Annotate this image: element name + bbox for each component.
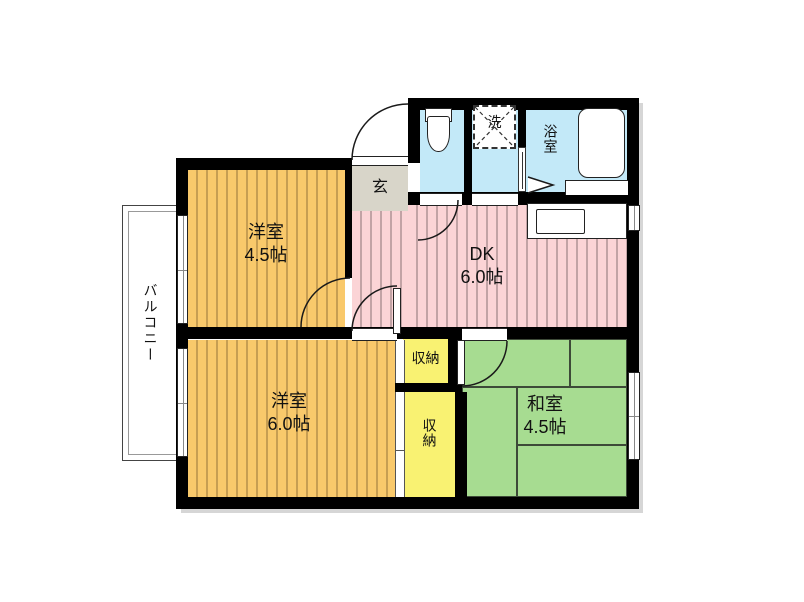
room-label-balcony: バルコニー <box>141 283 159 363</box>
room-label-genkan: 玄 <box>352 178 408 198</box>
floor-plan: 洋室 4.5帖 DK 6.0帖 洋室 6.0帖 和室 4.5帖 玄 バルコニー … <box>0 0 804 602</box>
room-label-storage-lower: 収納 <box>420 418 438 448</box>
tatami-line <box>569 339 571 388</box>
kitchen-sink <box>536 209 585 234</box>
room-name: 洋室 <box>196 221 336 244</box>
wall <box>408 98 420 163</box>
wall <box>518 110 526 150</box>
window <box>628 205 640 231</box>
closet-door-tick <box>396 450 404 451</box>
room-label-western-4-5: 洋室 4.5帖 <box>196 221 336 266</box>
tatami-line <box>462 386 627 388</box>
wall <box>176 497 639 509</box>
room-size: 6.0帖 <box>219 413 359 436</box>
window <box>177 215 188 324</box>
door-opening-laundry <box>472 193 518 206</box>
room-size: 4.5帖 <box>196 244 336 267</box>
room-label-western-6-0: 洋室 6.0帖 <box>219 390 359 435</box>
room-size: 4.5帖 <box>475 416 615 439</box>
room-label-storage-upper: 収納 <box>403 350 448 368</box>
toilet-fixture-bowl <box>427 116 450 152</box>
room-label-japanese: 和室 4.5帖 <box>475 393 615 438</box>
entrance-threshold <box>352 156 408 166</box>
wall <box>464 110 472 192</box>
window <box>177 348 188 457</box>
door-opening-western-4-5 <box>345 278 352 327</box>
tatami-line <box>516 444 627 446</box>
wall <box>176 158 352 170</box>
door-leaf-dk <box>393 288 401 334</box>
room-name: 和室 <box>475 393 615 416</box>
door-opening-toilet <box>420 193 462 206</box>
shadow <box>181 509 643 513</box>
room-label-dk: DK 6.0帖 <box>412 243 552 288</box>
door-opening-japanese <box>462 328 507 341</box>
sliding-door-line <box>522 152 523 189</box>
room-size: 6.0帖 <box>412 266 552 289</box>
door-leaf-japanese <box>457 340 465 385</box>
room-name: 洋室 <box>219 390 359 413</box>
wall <box>455 392 467 497</box>
room-name: DK <box>412 243 552 266</box>
room-label-laundry: 洗 <box>473 114 516 132</box>
door-opening-dk <box>352 328 397 341</box>
wall <box>176 327 639 339</box>
window <box>628 372 640 460</box>
bathtub <box>578 108 625 178</box>
bath-counter <box>565 180 628 195</box>
door-arc-entrance <box>352 104 408 160</box>
sliding-door-bath <box>518 147 526 192</box>
room-label-bathroom: 浴室 <box>541 124 559 154</box>
